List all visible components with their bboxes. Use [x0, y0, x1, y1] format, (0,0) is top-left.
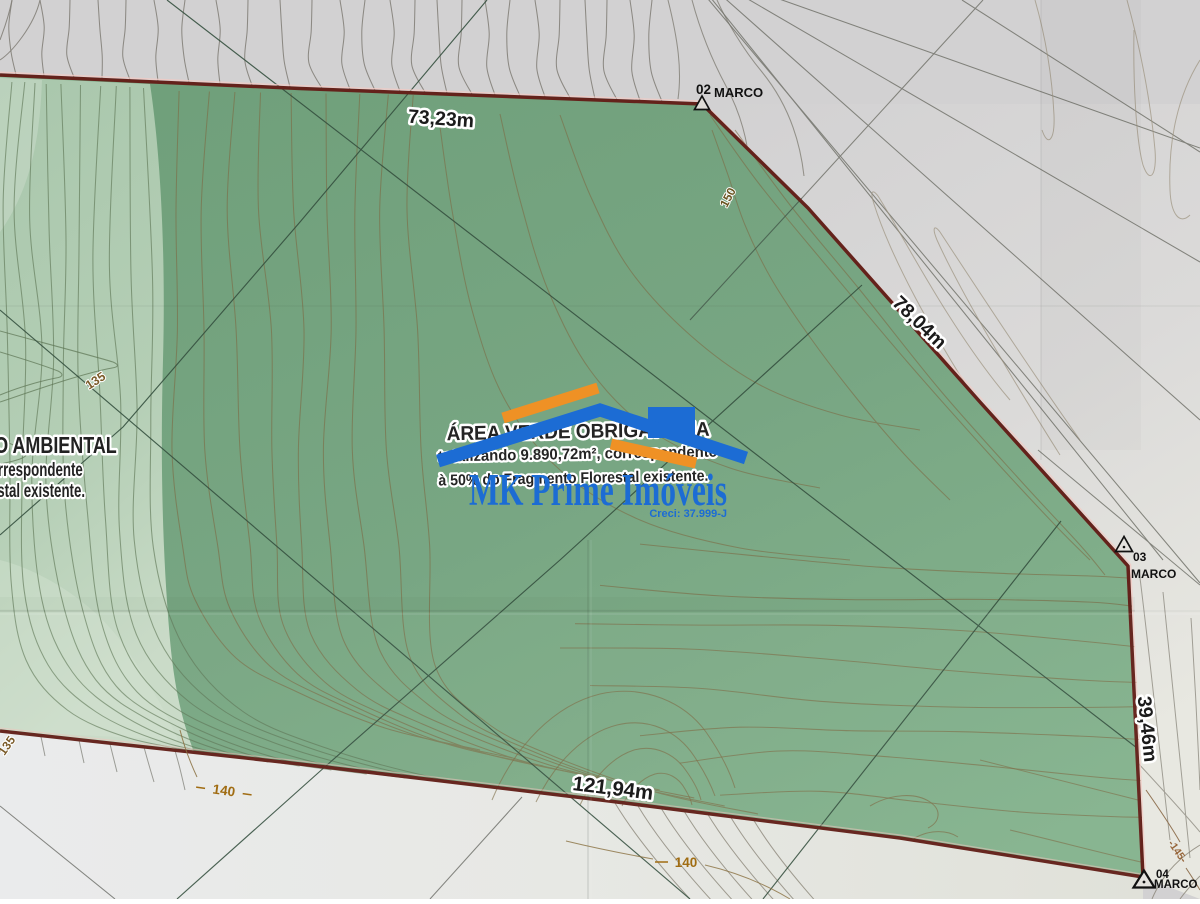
svg-text:140: 140	[212, 782, 236, 800]
svg-text:ÇO AMBIENTAL: ÇO AMBIENTAL	[0, 433, 117, 459]
svg-text:MARCO: MARCO	[1154, 879, 1197, 891]
svg-text:MARCO: MARCO	[1131, 567, 1176, 581]
svg-text:Creci: 37.999-J: Creci: 37.999-J	[649, 508, 727, 520]
svg-text:03: 03	[1133, 550, 1147, 564]
svg-text:MARCO: MARCO	[714, 85, 763, 100]
svg-text:140: 140	[675, 855, 698, 870]
svg-text:73,23m: 73,23m	[407, 106, 475, 133]
svg-text:rrespondente: rrespondente	[0, 460, 83, 481]
svg-text:02: 02	[696, 82, 711, 97]
svg-text:stal existente.: stal existente.	[0, 481, 85, 502]
